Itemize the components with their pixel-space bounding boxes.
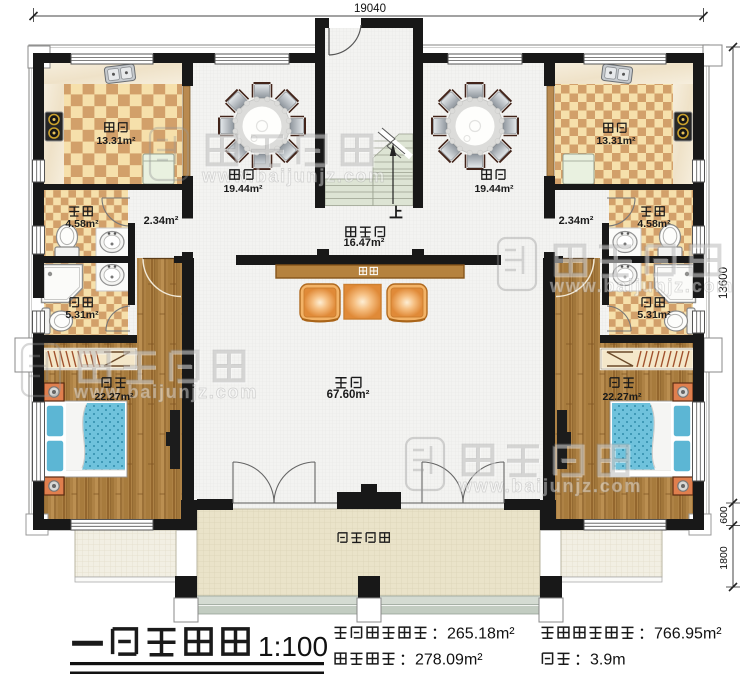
- svg-text:www.baijunjz.com: www.baijunjz.com: [549, 276, 734, 296]
- svg-text:4.58m²: 4.58m²: [637, 218, 671, 230]
- svg-text:：766.95m²: ：766.95m²: [638, 626, 722, 643]
- svg-text:2.34m²: 2.34m²: [559, 215, 594, 227]
- svg-text:1800: 1800: [718, 546, 730, 570]
- svg-text:：265.18m²: ：265.18m²: [431, 626, 515, 643]
- svg-text:22.27m²: 22.27m²: [94, 391, 134, 403]
- svg-text:2.34m²: 2.34m²: [144, 215, 179, 227]
- svg-text:1:100: 1:100: [258, 631, 328, 662]
- svg-text:13.31m²: 13.31m²: [96, 135, 136, 147]
- svg-text:19.44m²: 19.44m²: [474, 183, 514, 195]
- svg-text:：278.09m²: ：278.09m²: [399, 652, 483, 669]
- svg-text:：3.9m: ：3.9m: [574, 652, 626, 669]
- svg-text:600: 600: [718, 506, 730, 524]
- svg-text:19040: 19040: [354, 3, 386, 15]
- svg-text:13.31m²: 13.31m²: [596, 135, 636, 147]
- svg-text:5.31m²: 5.31m²: [65, 309, 99, 321]
- svg-text:67.60m²: 67.60m²: [327, 389, 370, 401]
- svg-text:4.58m²: 4.58m²: [65, 218, 99, 230]
- svg-text:22.27m²: 22.27m²: [602, 391, 642, 403]
- svg-text:16.47m²: 16.47m²: [344, 237, 385, 249]
- svg-text:www.baijunjz.com: www.baijunjz.com: [457, 476, 642, 496]
- svg-text:19.44m²: 19.44m²: [223, 183, 263, 195]
- svg-text:5.31m²: 5.31m²: [637, 309, 671, 321]
